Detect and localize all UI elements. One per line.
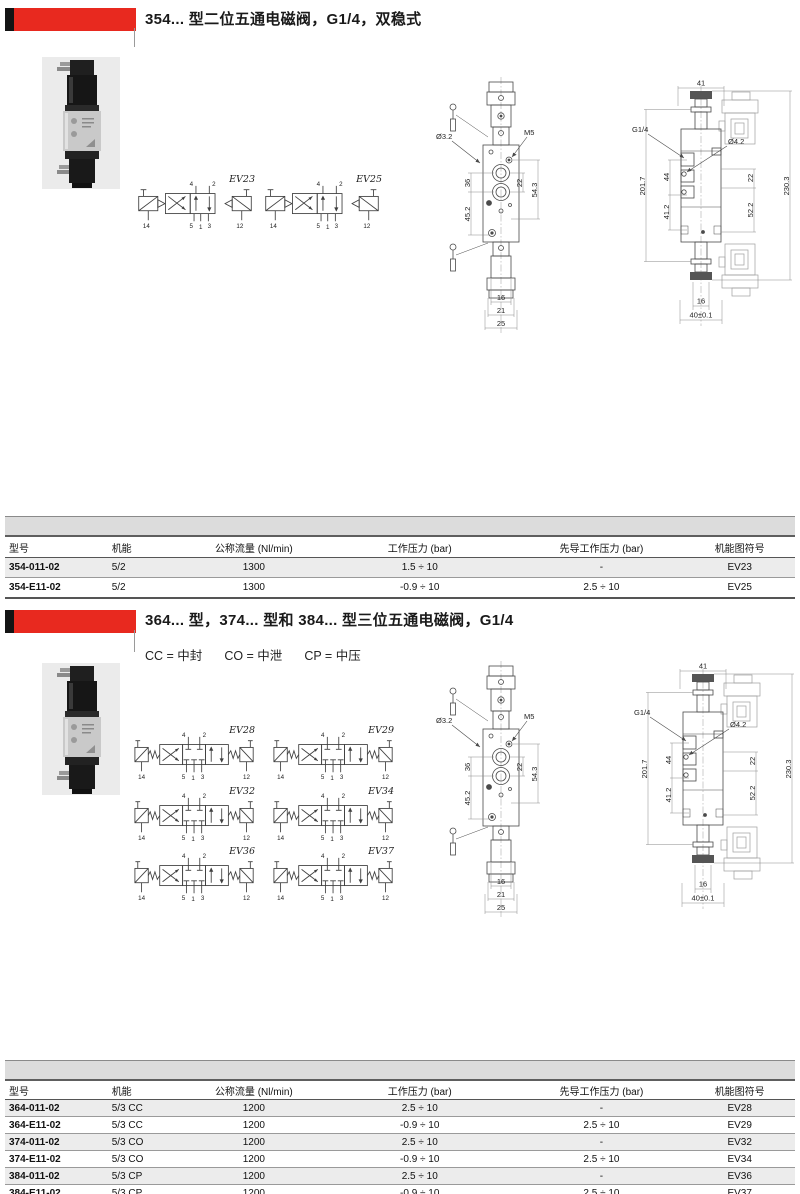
schematic-ev36: EV36 — [133, 849, 257, 907]
col-header-pilot-pressure: 先导工作压力 (bar) — [518, 1081, 684, 1100]
cell-symbol: EV25 — [684, 578, 795, 599]
section1-title: 354... 型二位五通电磁阀，G1/4，双稳式 — [145, 8, 421, 29]
schematic-ev28: EV28 — [133, 728, 257, 786]
cell-function: 5/3 CC — [108, 1100, 187, 1117]
col-header-function: 机能 — [108, 1081, 187, 1100]
cell-pressure: -0.9 ÷ 10 — [321, 578, 519, 599]
cell-model: 354-011-02 — [5, 558, 108, 578]
valve-53-schematic-icon — [274, 853, 392, 903]
schematic-ev34: EV34 — [272, 789, 396, 847]
front-view-drawing — [436, 77, 540, 333]
valve-53-schematic-icon — [135, 793, 253, 843]
side-view-drawing — [634, 662, 794, 910]
cell-pressure: 2.5 ÷ 10 — [321, 1168, 519, 1185]
schematic-label: EV28 — [229, 725, 255, 736]
schematic-ev29: EV29 — [272, 728, 396, 786]
cell-symbol: EV34 — [684, 1151, 795, 1168]
cell-function: 5/3 CP — [108, 1168, 187, 1185]
table-row: 384-011-02 5/3 CP 1200 2.5 ÷ 10 - EV36 — [5, 1168, 795, 1185]
col-header-model: 型号 — [5, 1081, 108, 1100]
col-header-flow: 公称流量 (Nl/min) — [187, 537, 321, 558]
cell-flow: 1300 — [187, 578, 321, 599]
cell-model: 384-E11-02 — [5, 1185, 108, 1194]
cell-pilot-pressure: - — [518, 1100, 684, 1117]
section1-product-photo — [42, 57, 120, 194]
spec-table-364-374-384: 型号 机能 公称流量 (Nl/min) 工作压力 (bar) 先导工作压力 (b… — [5, 1060, 795, 1194]
cell-flow: 1200 — [187, 1151, 321, 1168]
cell-pressure: 2.5 ÷ 10 — [321, 1134, 519, 1151]
table-row: 364-011-02 5/3 CC 1200 2.5 ÷ 10 - EV28 — [5, 1100, 795, 1117]
cell-function: 5/3 CC — [108, 1117, 187, 1134]
cell-function: 5/2 — [108, 578, 187, 599]
cell-symbol: EV32 — [684, 1134, 795, 1151]
section2-side-drawing — [622, 657, 800, 922]
cell-function: 5/3 CO — [108, 1134, 187, 1151]
table-header-row: 型号 机能 公称流量 (Nl/min) 工作压力 (bar) 先导工作压力 (b… — [5, 1081, 795, 1100]
cell-function: 5/3 CO — [108, 1151, 187, 1168]
section1-side-drawing — [620, 74, 798, 339]
cell-pilot-pressure: 2.5 ÷ 10 — [518, 1151, 684, 1168]
cell-flow: 1200 — [187, 1100, 321, 1117]
table-row: 354-E11-02 5/2 1300 -0.9 ÷ 10 2.5 ÷ 10 E… — [5, 578, 795, 599]
col-header-pressure: 工作压力 (bar) — [321, 537, 519, 558]
section1-front-drawing — [432, 75, 562, 340]
cell-model: 374-011-02 — [5, 1134, 108, 1151]
section2-title: 364... 型，374... 型和 384... 型三位五通电磁阀，G1/4 — [145, 609, 513, 630]
front-view-drawing — [436, 661, 540, 917]
cell-flow: 1200 — [187, 1134, 321, 1151]
valve-52-schematic-icon — [266, 181, 379, 231]
cell-function: 5/2 — [108, 558, 187, 578]
col-header-pressure: 工作压力 (bar) — [321, 1081, 519, 1100]
cell-model: 364-011-02 — [5, 1100, 108, 1117]
cell-flow: 1200 — [187, 1117, 321, 1134]
cell-model: 364-E11-02 — [5, 1117, 108, 1134]
schematic-label: EV37 — [368, 846, 394, 857]
cell-symbol: EV36 — [684, 1168, 795, 1185]
catalog-page: 4 2 14 5 1 3 12 — [0, 0, 800, 1194]
valve-52-schematic-icon — [139, 181, 252, 231]
cell-pilot-pressure: - — [518, 558, 684, 578]
table-top-band — [5, 516, 795, 537]
cell-pilot-pressure: 2.5 ÷ 10 — [518, 1185, 684, 1194]
cell-pilot-pressure: 2.5 ÷ 10 — [518, 1117, 684, 1134]
cell-symbol: EV37 — [684, 1185, 795, 1194]
cell-pilot-pressure: - — [518, 1134, 684, 1151]
cell-pressure: -0.9 ÷ 10 — [321, 1151, 519, 1168]
schematic-label: EV25 — [356, 174, 382, 185]
cell-pressure: -0.9 ÷ 10 — [321, 1117, 519, 1134]
table-row: 354-011-02 5/2 1300 1.5 ÷ 10 - EV23 — [5, 558, 795, 578]
schematic-ev25: EV25 — [260, 177, 384, 235]
schematic-ev32: EV32 — [133, 789, 257, 847]
col-header-flow: 公称流量 (Nl/min) — [187, 1081, 321, 1100]
valve-53-schematic-icon — [274, 793, 392, 843]
schematic-label: EV29 — [368, 725, 394, 736]
table-top-band — [5, 1060, 795, 1081]
legend-co: CO = 中泄 — [224, 649, 282, 663]
side-view-drawing — [632, 79, 792, 327]
col-header-function: 机能 — [108, 537, 187, 558]
schematic-label: EV32 — [229, 786, 255, 797]
cell-pressure: -0.9 ÷ 10 — [321, 1185, 519, 1194]
spec-table-354: 型号 机能 公称流量 (Nl/min) 工作压力 (bar) 先导工作压力 (b… — [5, 516, 795, 599]
function-legend: CC = 中封CO = 中泄CP = 中压 — [145, 645, 383, 664]
col-header-model: 型号 — [5, 537, 108, 558]
cell-function: 5/3 CP — [108, 1185, 187, 1194]
cell-model: 374-E11-02 — [5, 1151, 108, 1168]
valve-53-schematic-icon — [135, 853, 253, 903]
cell-flow: 1300 — [187, 558, 321, 578]
cell-model: 384-011-02 — [5, 1168, 108, 1185]
section2-front-drawing — [432, 659, 562, 924]
schematic-ev23: EV23 — [133, 177, 257, 235]
legend-cp: CP = 中压 — [304, 649, 360, 663]
col-header-pilot-pressure: 先导工作压力 (bar) — [518, 537, 684, 558]
schematic-ev37: EV37 — [272, 849, 396, 907]
cell-flow: 1200 — [187, 1185, 321, 1194]
section1-red-banner — [5, 8, 136, 31]
cell-pressure: 1.5 ÷ 10 — [321, 558, 519, 578]
cell-flow: 1200 — [187, 1168, 321, 1185]
table-row: 374-E11-02 5/3 CO 1200 -0.9 ÷ 10 2.5 ÷ 1… — [5, 1151, 795, 1168]
schematic-label: EV34 — [368, 786, 394, 797]
section2-red-banner — [5, 610, 136, 633]
cell-pilot-pressure: - — [518, 1168, 684, 1185]
valve-53-schematic-icon — [274, 732, 392, 782]
cell-symbol: EV23 — [684, 558, 795, 578]
cell-model: 354-E11-02 — [5, 578, 108, 599]
banner-rule — [134, 630, 135, 652]
cell-pressure: 2.5 ÷ 10 — [321, 1100, 519, 1117]
section2-product-photo — [42, 663, 120, 800]
table-row: 374-011-02 5/3 CO 1200 2.5 ÷ 10 - EV32 — [5, 1134, 795, 1151]
schematic-label: EV36 — [229, 846, 255, 857]
col-header-symbol: 机能图符号 — [684, 1081, 795, 1100]
cell-pilot-pressure: 2.5 ÷ 10 — [518, 578, 684, 599]
table-row: 364-E11-02 5/3 CC 1200 -0.9 ÷ 10 2.5 ÷ 1… — [5, 1117, 795, 1134]
banner-rule — [134, 28, 135, 47]
cell-symbol: EV29 — [684, 1117, 795, 1134]
table-row: 384-E11-02 5/3 CP 1200 -0.9 ÷ 10 2.5 ÷ 1… — [5, 1185, 795, 1194]
schematic-label: EV23 — [229, 174, 255, 185]
valve-53-schematic-icon — [135, 732, 253, 782]
table-header-row: 型号 机能 公称流量 (Nl/min) 工作压力 (bar) 先导工作压力 (b… — [5, 537, 795, 558]
cell-symbol: EV28 — [684, 1100, 795, 1117]
col-header-symbol: 机能图符号 — [684, 537, 795, 558]
legend-cc: CC = 中封 — [145, 649, 202, 663]
